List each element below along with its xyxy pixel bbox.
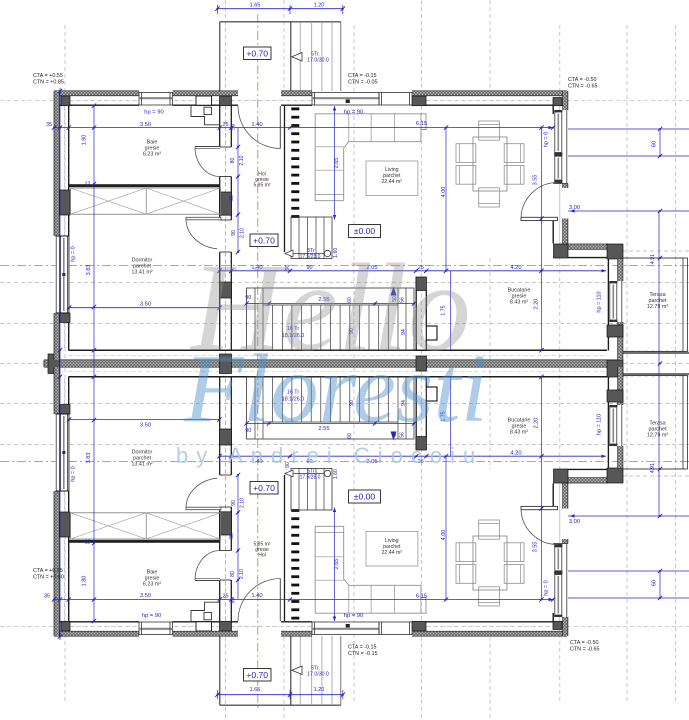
svg-text:12.79 m²: 12.79 m² <box>647 433 668 439</box>
svg-text:hp = 90: hp = 90 <box>144 110 164 116</box>
svg-text:2.10: 2.10 <box>239 569 245 579</box>
svg-text:3.83: 3.83 <box>86 453 92 464</box>
svg-text:8.43 m²: 8.43 m² <box>510 300 528 306</box>
svg-text:CTN = -0.15: CTN = -0.15 <box>348 651 378 657</box>
svg-text:6.23 m²: 6.23 m² <box>143 582 161 588</box>
svg-text:13.41 m²: 13.41 m² <box>131 462 152 468</box>
svg-text:by Andrei Ciocoiu: by Andrei Ciocoiu <box>176 443 483 468</box>
svg-text:17.5/28.0: 17.5/28.0 <box>300 475 321 481</box>
svg-text:hp = 90: hp = 90 <box>344 110 364 116</box>
svg-text:25: 25 <box>222 122 228 128</box>
svg-text:90: 90 <box>231 124 237 130</box>
svg-text:3.50: 3.50 <box>140 301 151 307</box>
svg-text:6.23 m²: 6.23 m² <box>143 152 161 158</box>
svg-text:35: 35 <box>46 122 52 128</box>
svg-text:4.20: 4.20 <box>510 450 521 456</box>
svg-text:80: 80 <box>230 571 236 577</box>
svg-text:3.00: 3.00 <box>569 205 580 211</box>
svg-text:Hol: Hol <box>258 553 266 559</box>
svg-text:CTA = +0.55: CTA = +0.55 <box>33 73 63 79</box>
svg-text:hp = 0: hp = 0 <box>543 132 549 147</box>
svg-text:4.00: 4.00 <box>441 530 447 541</box>
svg-text:1.80: 1.80 <box>82 135 88 146</box>
svg-text:3.55: 3.55 <box>533 542 539 553</box>
svg-text:85: 85 <box>229 195 235 201</box>
svg-text:±0.00: ±0.00 <box>354 226 376 236</box>
svg-text:CTA = -0.50: CTA = -0.50 <box>570 640 599 646</box>
svg-text:90: 90 <box>231 500 237 506</box>
svg-text:2.20: 2.20 <box>534 299 540 310</box>
svg-text:CTN = +0.85: CTN = +0.85 <box>33 79 64 85</box>
svg-text:hp = 110: hp = 110 <box>597 291 603 312</box>
svg-text:1.20: 1.20 <box>314 687 325 693</box>
svg-text:1.65: 1.65 <box>250 3 261 9</box>
svg-text:4.20: 4.20 <box>510 265 521 271</box>
svg-text:hp = 0: hp = 0 <box>543 580 549 595</box>
svg-text:hp = 110: hp = 110 <box>597 414 603 435</box>
svg-text:17.0/30.0: 17.0/30.0 <box>307 58 329 64</box>
svg-text:2.65: 2.65 <box>334 559 340 570</box>
svg-text:2.10: 2.10 <box>240 498 246 508</box>
svg-text:CTA = -0.50: CTA = -0.50 <box>568 77 597 83</box>
svg-text:12: 12 <box>85 182 91 188</box>
svg-text:2.10: 2.10 <box>240 228 246 238</box>
svg-text:4.91: 4.91 <box>650 254 656 264</box>
svg-text:CTA = +0.55: CTA = +0.55 <box>33 568 63 574</box>
svg-text:13.41 m²: 13.41 m² <box>131 270 152 276</box>
svg-text:CTA = -0.15: CTA = -0.15 <box>348 73 377 79</box>
svg-text:3.50: 3.50 <box>140 122 151 128</box>
svg-text:6.15: 6.15 <box>416 594 427 600</box>
svg-text:+0.70: +0.70 <box>246 670 268 680</box>
svg-text:4.00: 4.00 <box>441 187 447 198</box>
svg-text:17.0/30.0: 17.0/30.0 <box>307 672 329 678</box>
svg-text:3.50: 3.50 <box>140 422 151 428</box>
svg-text:hp = 0: hp = 0 <box>71 466 77 481</box>
svg-text:4.91: 4.91 <box>650 463 656 473</box>
svg-text:12.79 m²: 12.79 m² <box>647 304 668 310</box>
svg-text:1.60: 1.60 <box>333 469 339 479</box>
svg-text:hp = 90: hp = 90 <box>142 613 162 619</box>
svg-text:+0.70: +0.70 <box>246 48 268 58</box>
svg-text:60: 60 <box>652 580 658 586</box>
svg-text:1.20: 1.20 <box>314 3 325 9</box>
svg-text:±0.00: ±0.00 <box>354 492 376 502</box>
svg-text:35: 35 <box>44 594 50 600</box>
svg-text:hp = 90: hp = 90 <box>344 613 364 619</box>
svg-text:22.44 m²: 22.44 m² <box>382 179 403 185</box>
svg-text:1.65: 1.65 <box>250 687 261 693</box>
svg-text:2.20: 2.20 <box>534 418 540 429</box>
svg-text:CTN = -0.65: CTN = -0.65 <box>570 646 600 652</box>
svg-text:CTA = -0.15: CTA = -0.15 <box>348 645 377 651</box>
svg-text:2.10: 2.10 <box>239 155 245 165</box>
svg-text:1.40: 1.40 <box>251 122 262 128</box>
svg-text:2.65: 2.65 <box>334 158 340 169</box>
svg-text:6.15: 6.15 <box>416 121 427 127</box>
svg-text:8.43 m²: 8.43 m² <box>510 430 528 436</box>
svg-text:CTN = -0.65: CTN = -0.65 <box>568 83 598 89</box>
svg-text:60: 60 <box>652 141 658 147</box>
svg-text:90: 90 <box>231 597 237 603</box>
svg-text:CTN = -0.05: CTN = -0.05 <box>348 79 378 85</box>
svg-text:25: 25 <box>222 594 228 600</box>
svg-text:22.44 m²: 22.44 m² <box>382 550 403 556</box>
svg-text:12: 12 <box>85 540 91 546</box>
svg-text:1.40: 1.40 <box>251 593 262 599</box>
svg-text:3.50: 3.50 <box>140 593 151 599</box>
svg-text:3.83: 3.83 <box>86 265 92 276</box>
svg-text:3.55: 3.55 <box>533 175 539 186</box>
svg-text:80: 80 <box>230 158 236 164</box>
svg-text:85: 85 <box>229 533 235 539</box>
svg-text:CTN = +0.60: CTN = +0.60 <box>33 574 64 580</box>
svg-text:5.95 m²: 5.95 m² <box>254 183 271 189</box>
svg-text:3.00: 3.00 <box>569 519 580 525</box>
svg-text:90: 90 <box>231 230 237 236</box>
svg-text:hp = 0: hp = 0 <box>71 246 77 261</box>
svg-text:+0.70: +0.70 <box>253 483 275 493</box>
svg-text:1.80: 1.80 <box>82 576 88 587</box>
svg-text:Floresti: Floresti <box>183 335 488 442</box>
